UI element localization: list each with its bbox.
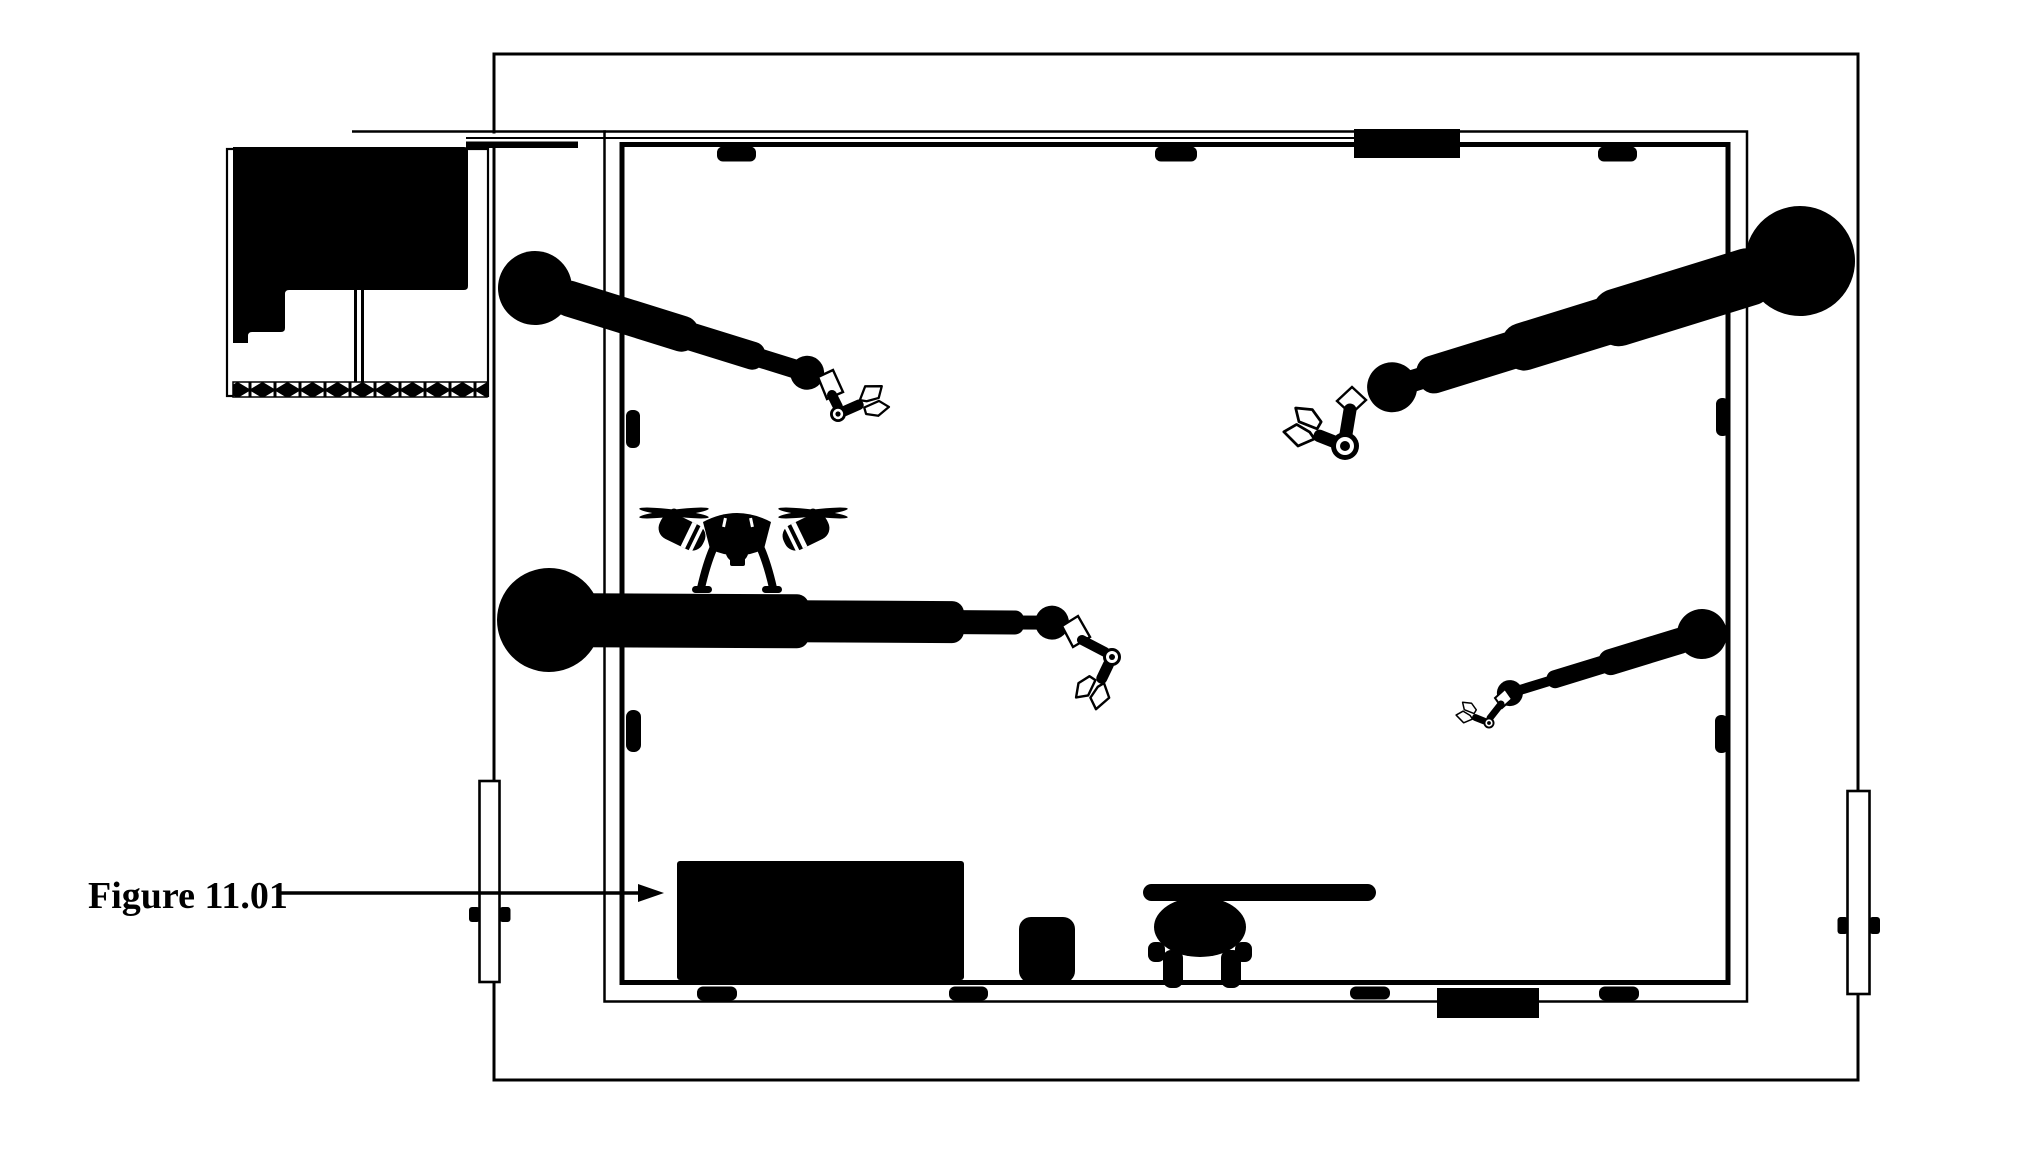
door-leaf [1848,791,1870,994]
wrist-joint [1103,648,1121,666]
wall-sensor [1350,987,1390,1000]
drone-foot [762,586,782,593]
chair-leg [1163,950,1183,988]
arm-segment [784,600,964,643]
wrist-joint [1484,718,1495,729]
stool [1019,917,1075,983]
wrist-joint [1331,432,1359,460]
wall-sensor [1715,715,1728,753]
cabinet-hatch-strip [233,382,487,397]
wall-sensor [697,987,737,1001]
wall-sensor [1155,147,1197,162]
wall-sensor [626,710,641,752]
chair-seat [1154,897,1246,957]
wall-stub [466,142,578,149]
wall-sensor [1599,987,1639,1001]
wall-sensor [626,410,640,448]
workbench [677,861,964,980]
wall-vent [1437,988,1539,1018]
elbow-joint [1035,606,1069,640]
drone-camera-mount [730,558,745,566]
chair-armrest [1235,942,1252,962]
wrist-bar [1346,410,1350,434]
figure-canvas: Figure 11.01 [0,0,2033,1172]
wall-sensor [1598,147,1637,162]
wrist-bar [832,395,838,407]
arm-segment [574,593,809,648]
wall-sensor [949,987,988,1001]
table-top [1143,884,1376,901]
drone-foot [692,586,712,593]
wall-sensor [717,147,756,162]
door-tab [500,907,511,922]
chair-armrest [1148,942,1165,962]
wall-vent [1354,129,1460,158]
figure-label: Figure 11.01 [88,875,288,917]
door-tab [1870,917,1881,934]
wrist-joint [830,406,846,422]
floor-plan-diagram: Figure 11.01 [0,0,2033,1172]
door-leaf [480,781,500,982]
wall-sensor [1716,398,1729,436]
